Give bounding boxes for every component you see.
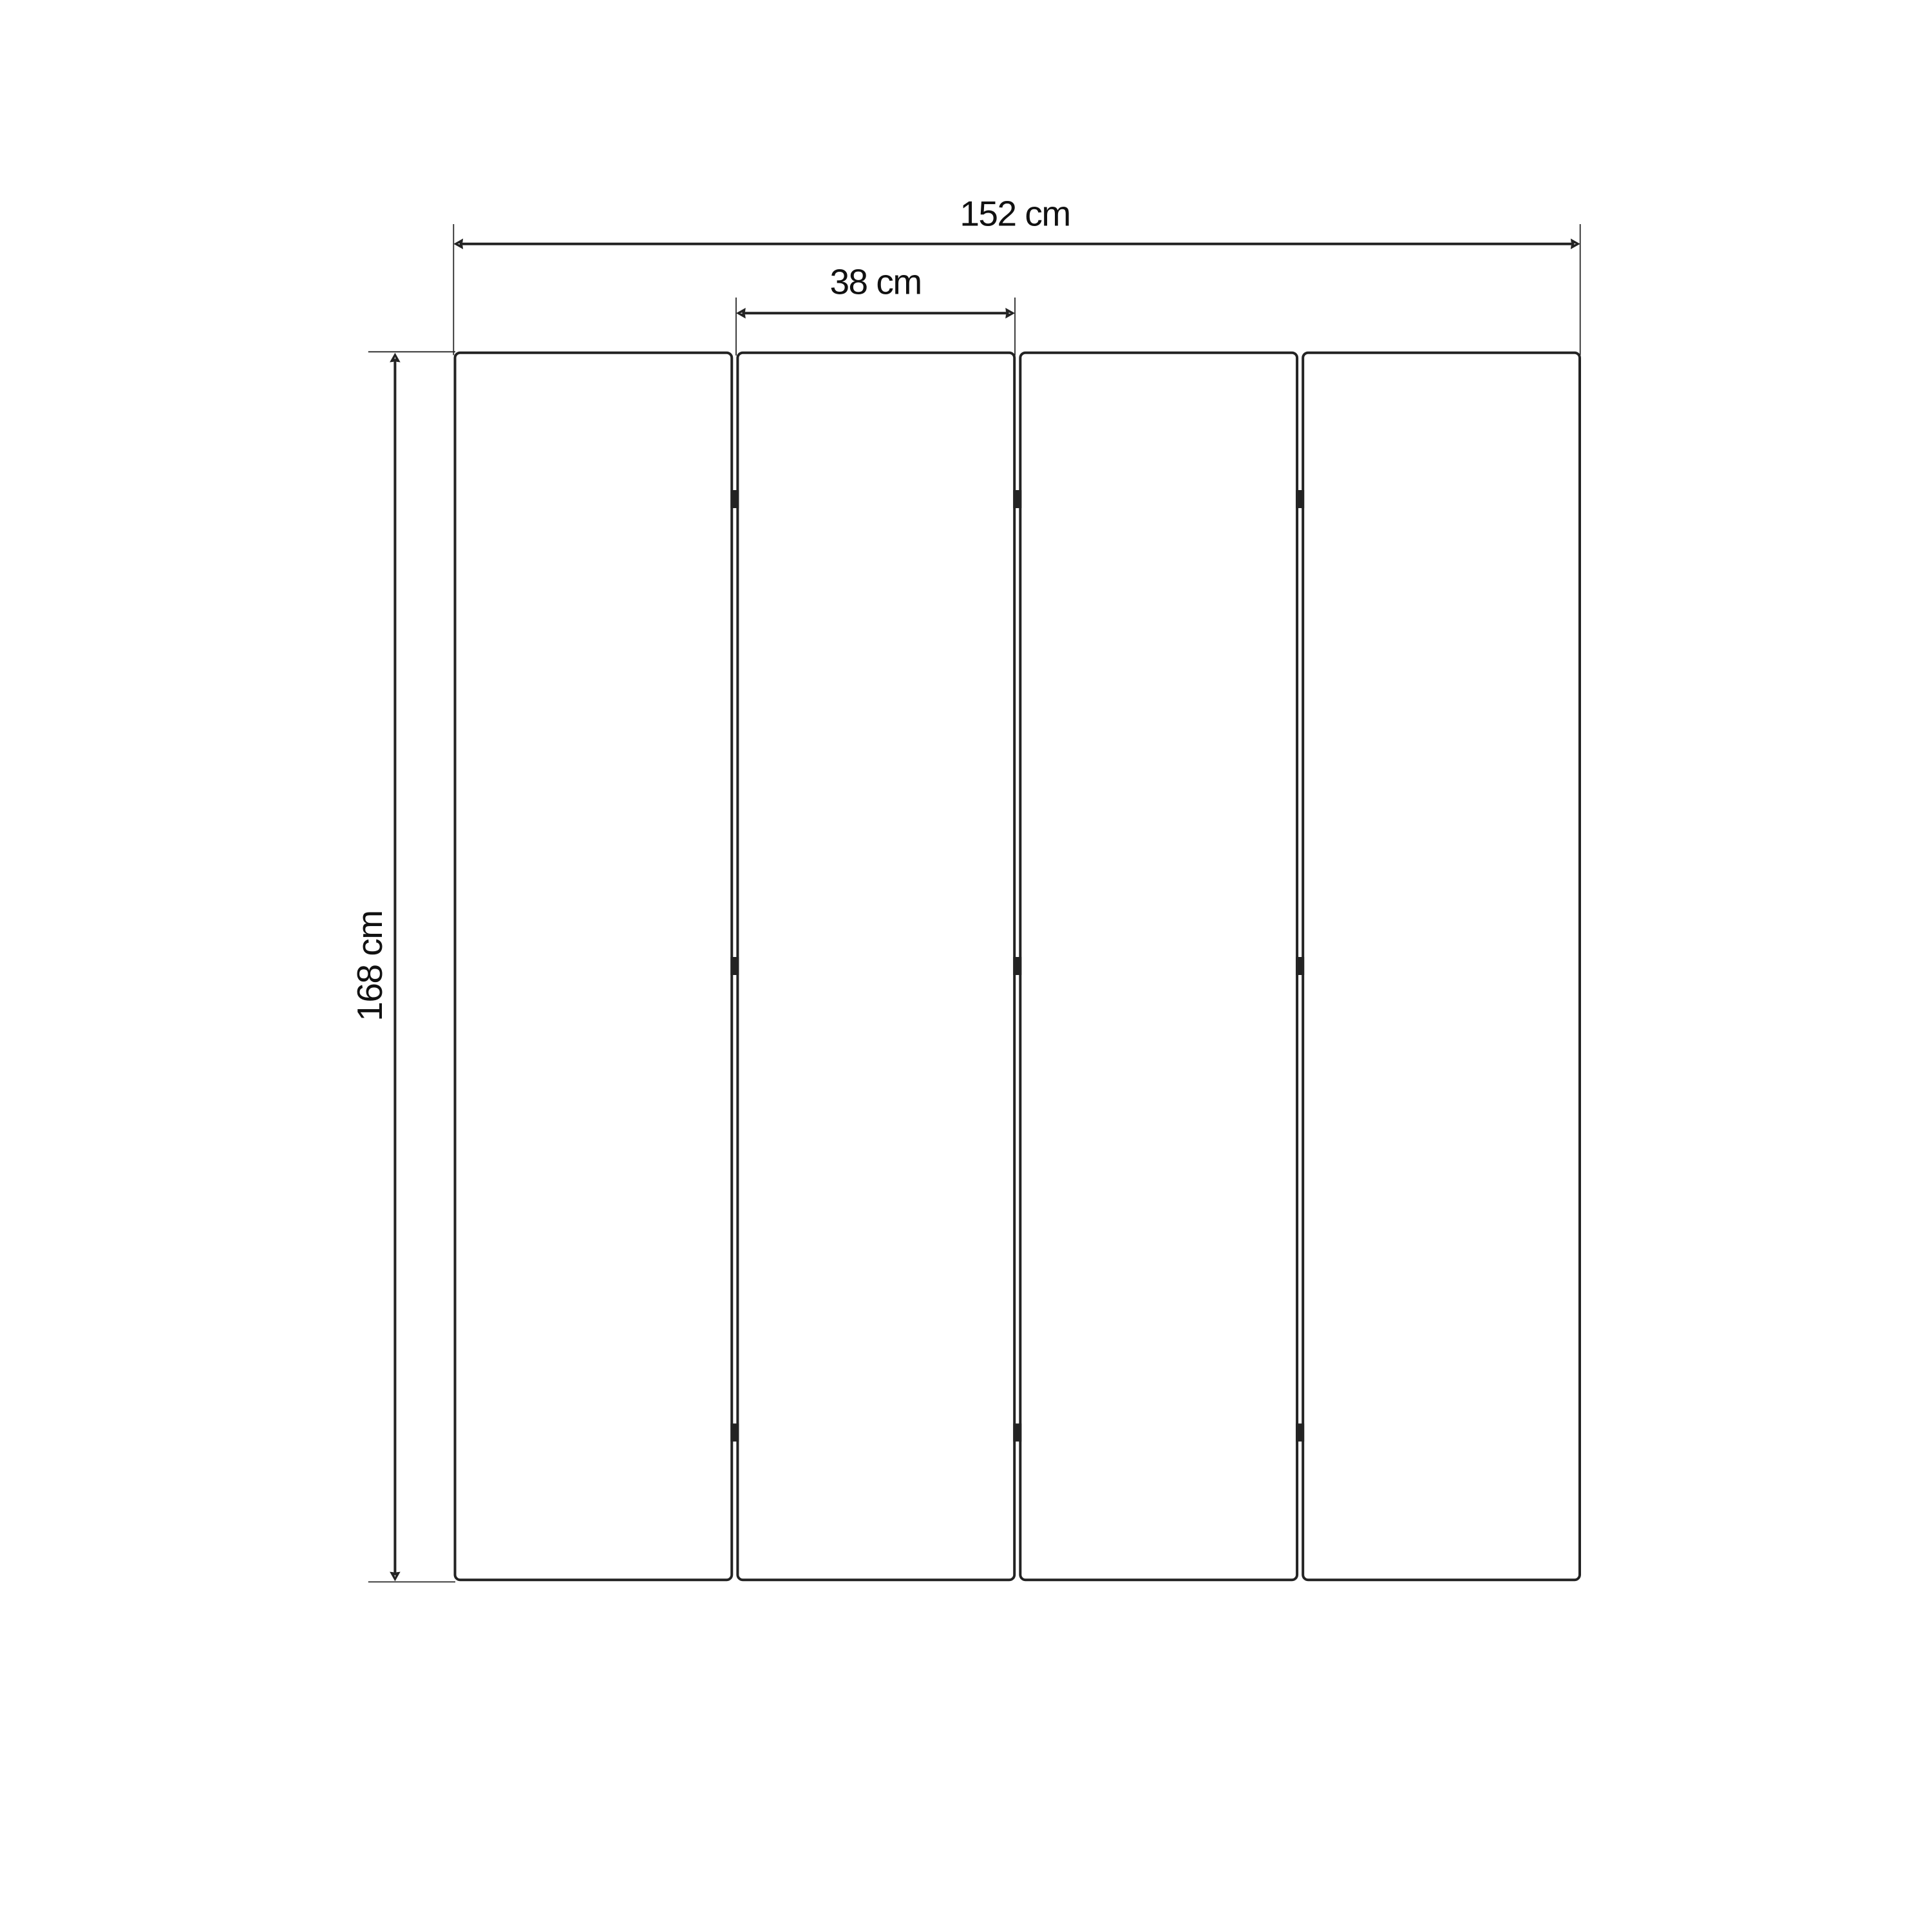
svg-text:38 cm: 38 cm (829, 261, 921, 301)
svg-text:152 cm: 152 cm (960, 194, 1070, 234)
svg-text:168 cm: 168 cm (350, 911, 390, 1021)
